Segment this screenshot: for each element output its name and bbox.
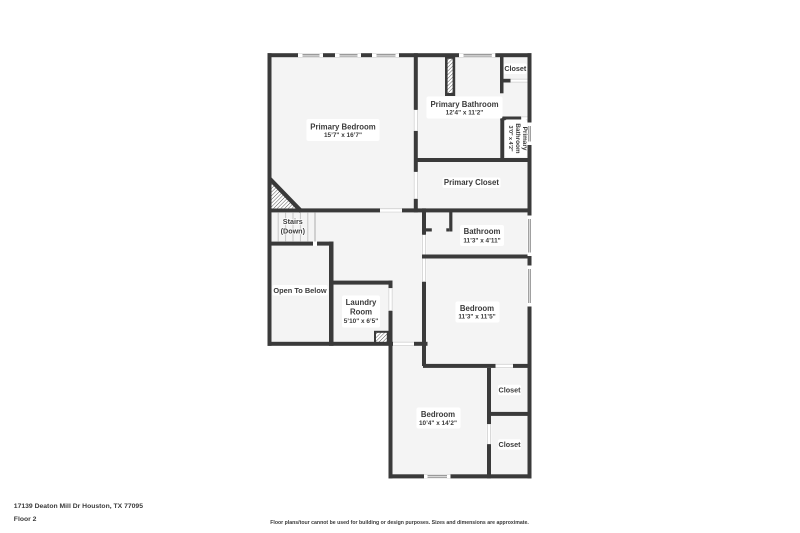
- svg-text:Primary Bedroom: Primary Bedroom: [310, 123, 375, 132]
- svg-text:Closet: Closet: [504, 64, 527, 73]
- svg-text:Open To Below: Open To Below: [273, 286, 326, 295]
- svg-text:Primary Bathroom: Primary Bathroom: [430, 100, 498, 109]
- svg-text:Closet: Closet: [499, 385, 522, 394]
- svg-text:Floor plans/tour cannot be use: Floor plans/tour cannot be used for buil…: [270, 520, 529, 526]
- svg-text:Primary Closet: Primary Closet: [444, 178, 499, 187]
- svg-text:Closet: Closet: [499, 440, 522, 449]
- svg-text:5’10" x 6’5": 5’10" x 6’5": [344, 318, 379, 325]
- svg-text:Room: Room: [350, 307, 372, 316]
- svg-text:(Down): (Down): [281, 227, 306, 236]
- svg-text:15’7" x 16’7": 15’7" x 16’7": [324, 132, 362, 139]
- svg-text:10’4" x 14’2": 10’4" x 14’2": [419, 420, 457, 427]
- svg-text:Bathroom: Bathroom: [464, 227, 501, 236]
- svg-text:3’0" x 4’2": 3’0" x 4’2": [507, 125, 513, 152]
- svg-text:11’3" x 11’5": 11’3" x 11’5": [458, 314, 495, 321]
- svg-text:Stairs: Stairs: [283, 217, 303, 226]
- svg-text:17139 Deaton Mill Dr Houston,: 17139 Deaton Mill Dr Houston, TX 77095: [14, 503, 143, 510]
- svg-text:Bathroom: Bathroom: [514, 123, 521, 153]
- svg-text:11’3" x 4’11": 11’3" x 4’11": [463, 237, 500, 244]
- svg-text:Laundry: Laundry: [346, 298, 377, 307]
- svg-text:12’4" x 11’2": 12’4" x 11’2": [446, 110, 484, 117]
- svg-text:Bedroom: Bedroom: [460, 304, 494, 313]
- svg-text:Floor 2: Floor 2: [14, 516, 37, 523]
- svg-text:Bedroom: Bedroom: [421, 410, 455, 419]
